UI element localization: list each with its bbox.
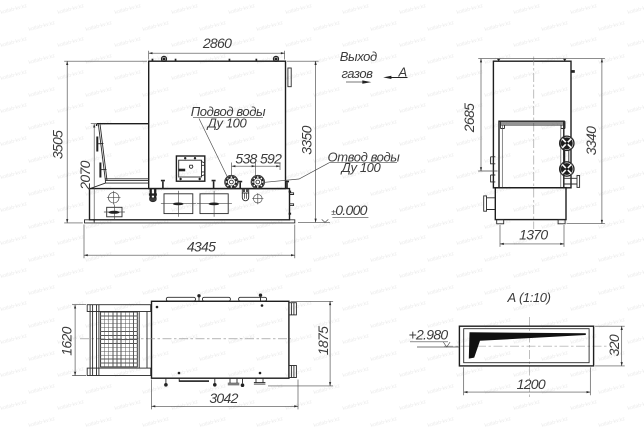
svg-text:2860: 2860 [202, 35, 232, 51]
svg-text:2685: 2685 [461, 103, 477, 133]
svg-text:А: А [397, 64, 406, 79]
svg-text:3505: 3505 [50, 130, 66, 159]
svg-text:1875: 1875 [315, 326, 331, 355]
svg-text:538: 538 [235, 150, 257, 166]
svg-text:Выход: Выход [340, 49, 377, 64]
svg-text:±0.000: ±0.000 [331, 202, 367, 218]
svg-text:3350: 3350 [299, 125, 315, 154]
svg-text:320: 320 [606, 334, 622, 356]
svg-text:3042: 3042 [209, 390, 238, 406]
svg-text:1620: 1620 [58, 326, 74, 355]
svg-text:2070: 2070 [77, 160, 93, 190]
svg-text:4345: 4345 [187, 239, 216, 255]
svg-text:газов: газов [341, 66, 373, 81]
svg-text:3340: 3340 [583, 126, 599, 155]
svg-text:592: 592 [260, 150, 282, 166]
svg-text:1200: 1200 [517, 376, 546, 392]
svg-text:+2.980: +2.980 [408, 327, 448, 343]
svg-text:1370: 1370 [519, 227, 548, 243]
svg-text:А (1:10): А (1:10) [506, 290, 550, 305]
